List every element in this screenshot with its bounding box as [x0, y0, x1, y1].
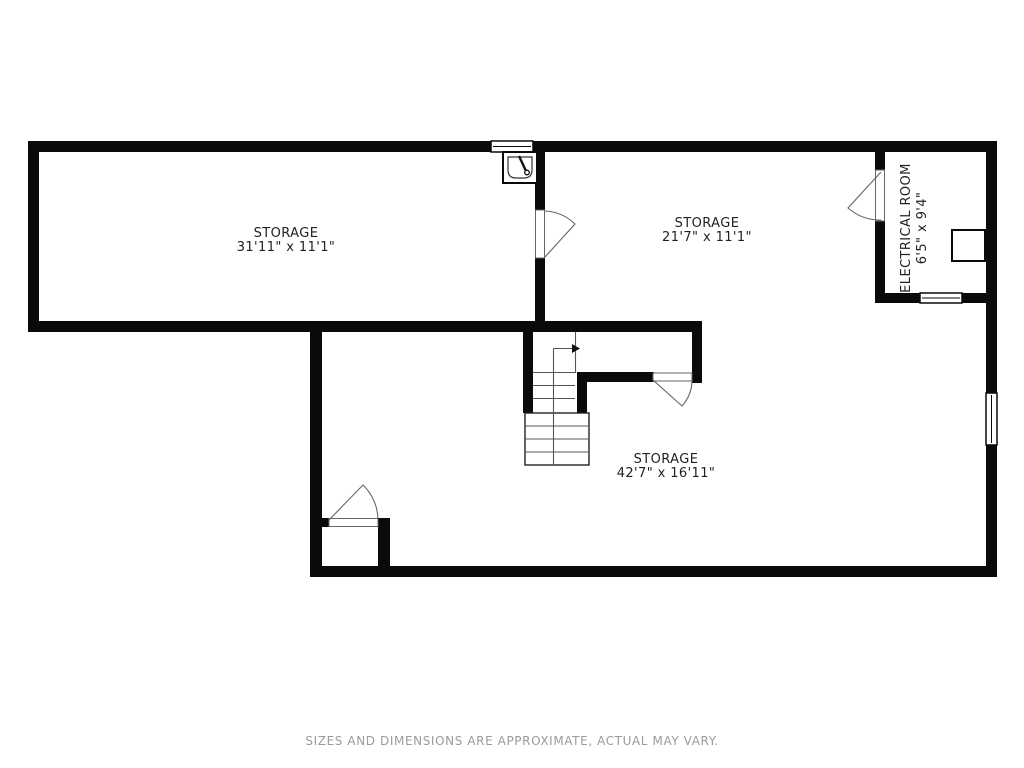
floor-plan-page: STORAGE 31'11" x 11'1" STORAGE 21'7" x 1…: [0, 0, 1024, 768]
storage-bottom-dimensions: 42'7" x 16'11": [617, 466, 716, 481]
wall-stair-east: [692, 321, 702, 383]
door-leaf: [876, 170, 885, 221]
floor-plan: STORAGE 31'11" x 11'1" STORAGE 21'7" x 1…: [0, 0, 1024, 768]
wall-closet-right: [378, 518, 390, 577]
door-electrical-room: [848, 170, 885, 221]
door-swing-arc: [653, 380, 692, 406]
windows: [491, 141, 997, 445]
electrical-room-label: ELECTRICAL ROOM: [899, 163, 914, 293]
storage-right-label: STORAGE: [675, 216, 740, 231]
wall-right: [986, 141, 997, 577]
sink-icon: [503, 152, 537, 183]
wall-electrical-left-upper: [875, 150, 885, 170]
storage-bottom-label: STORAGE: [634, 452, 699, 467]
walls: [28, 141, 997, 577]
wall-electrical-left-lower: [875, 221, 885, 303]
window-electrical-room: [920, 293, 962, 303]
disclaimer-text: SIZES AND DIMENSIONS ARE APPROXIMATE, AC…: [305, 734, 718, 748]
door-stair-landing: [653, 373, 692, 406]
doors: [329, 170, 885, 527]
wall-closet-top: [310, 518, 329, 527]
wall-landing-south: [577, 372, 654, 382]
door-leaf: [329, 519, 378, 527]
wall-mid-horizontal: [28, 321, 702, 332]
wall-bottomroom-left: [310, 321, 322, 577]
wall-stairwell-left: [523, 332, 533, 413]
wall-divider-lower: [535, 258, 545, 321]
storage-right-dimensions: 21'7" x 11'1": [662, 230, 752, 245]
door-leaf: [536, 210, 545, 258]
storage-left-dimensions: 31'11" x 11'1": [237, 240, 336, 255]
wall-bottom: [310, 566, 997, 577]
door-swing-arc: [329, 485, 378, 520]
door-closet: [329, 485, 378, 527]
window-top-wall: [491, 141, 533, 152]
wall-left: [28, 141, 39, 332]
door-leaf: [653, 373, 692, 381]
electrical-panel-box: [952, 230, 985, 261]
storage-left-label: STORAGE: [254, 226, 319, 241]
door-swing-arc: [545, 211, 575, 257]
electrical-room-dimensions: 6'5" x 9'4": [915, 192, 930, 265]
door-between-storage-rooms: [536, 210, 576, 258]
window-right-wall: [986, 393, 997, 445]
